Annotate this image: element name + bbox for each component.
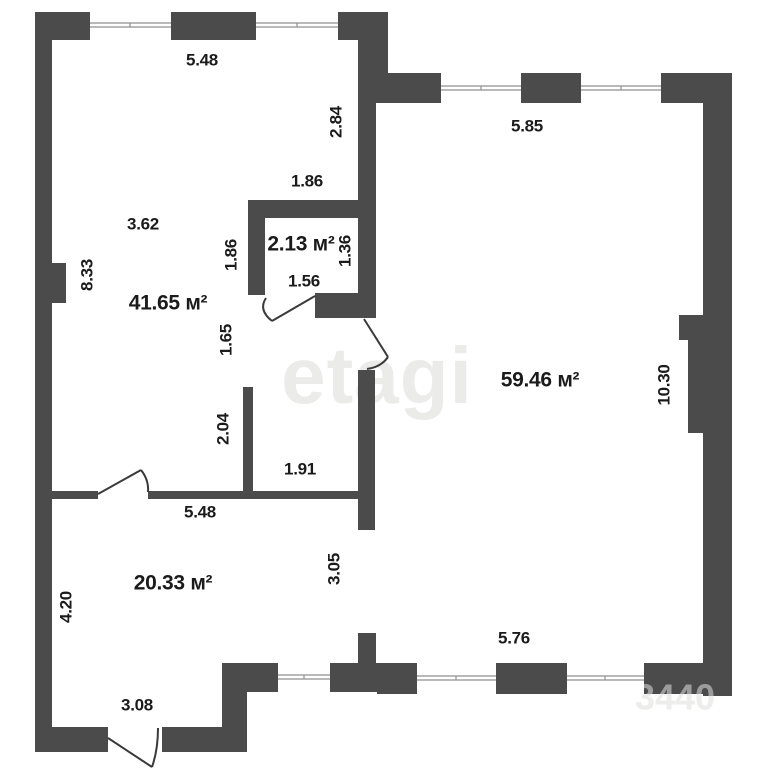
wall-center-upper (358, 103, 376, 200)
dimension-label: 2.04 (213, 412, 232, 445)
window-top-2 (256, 12, 338, 40)
wall-right-top (388, 73, 732, 103)
wall-center-top (358, 12, 388, 103)
wall-divider-left (52, 491, 98, 499)
dimension-label: 8.33 (77, 259, 96, 291)
wall-closet-top (248, 200, 376, 218)
wall-bottom-stub (358, 633, 376, 663)
dimension-label: 5.85 (511, 116, 543, 135)
window-lower-left (278, 663, 330, 692)
wall-right-exterior (703, 73, 732, 696)
room-area-label: 59.46 м² (501, 369, 580, 392)
window-right-top-2 (581, 73, 661, 103)
wall-bottom-left-a (35, 727, 108, 752)
room-area-label: 20.33 м² (134, 572, 213, 595)
wall-pilaster-right-a (679, 315, 703, 340)
watermark-corner-over: 3440 (635, 677, 715, 718)
wall-partition-stub (243, 387, 253, 498)
watermark-etagi: etagi (281, 331, 473, 420)
window-right-top-1 (441, 73, 521, 103)
dimension-label: 4.20 (56, 591, 75, 623)
dimension-label: 1.65 (216, 324, 235, 356)
dimension-label: 1.86 (221, 239, 240, 271)
dimension-label: 3.08 (121, 695, 153, 714)
dimension-label: 2.84 (326, 105, 345, 138)
wall-center-mid (358, 370, 375, 530)
floor-plan-page: etagi 3440 (0, 0, 768, 768)
dimension-label: 1.56 (288, 271, 320, 290)
wall-divider-right (148, 491, 358, 499)
dimension-label: 3.62 (127, 214, 159, 233)
floor-plan-canvas: etagi 3440 (0, 0, 768, 768)
dimension-label: 5.76 (498, 628, 530, 647)
wall-step-connector (222, 663, 247, 752)
room-area-label: 41.65 м² (129, 292, 208, 315)
wall-closet-right (358, 218, 376, 293)
wall-lower-mid-a (247, 663, 278, 692)
wall-closet-bottom (315, 293, 376, 318)
window-bottom-right-1 (417, 663, 496, 694)
dimension-label: 1.36 (335, 235, 354, 267)
window-top-1 (90, 12, 171, 40)
dimension-label: 3.05 (324, 553, 343, 585)
wall-pilaster-right-b (688, 340, 703, 433)
window-bottom-right-2 (567, 663, 644, 694)
wall-left-exterior (35, 12, 52, 752)
wall-lower-mid-b (330, 663, 377, 692)
dimension-label: 1.91 (284, 459, 316, 478)
room-area-label: 2.13 м² (267, 233, 334, 256)
dimension-label: 10.30 (654, 364, 673, 405)
dimension-label: 5.48 (186, 50, 218, 69)
dimension-label: 5.48 (184, 502, 216, 521)
wall-closet-left (248, 218, 265, 295)
dimension-label: 1.86 (291, 171, 323, 190)
wall-pilaster-left (52, 263, 66, 303)
